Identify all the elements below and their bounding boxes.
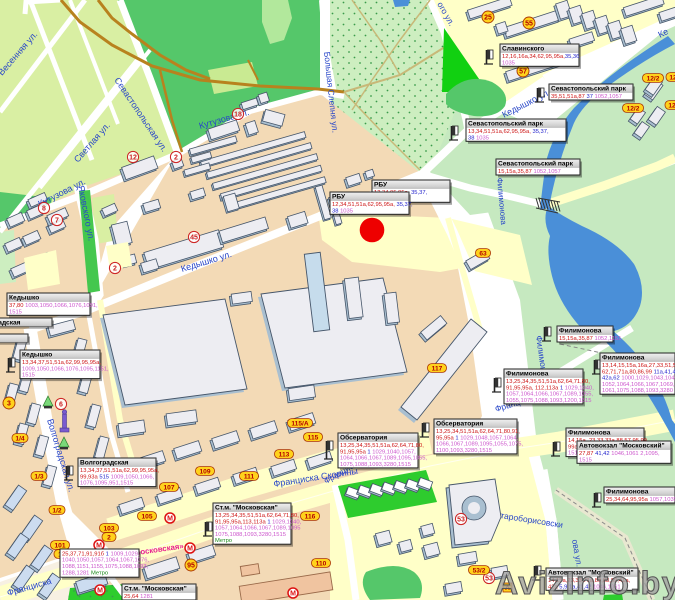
svg-text:13,25,34,35,51,51а,62,64,71,80: 13,25,34,35,51,51а,62,64,71,80, bbox=[215, 513, 299, 519]
svg-text:13,34,37,51,51а,62,99,95,95а,: 13,34,37,51,51а,62,99,95,95а, bbox=[80, 468, 159, 474]
svg-text:12: 12 bbox=[129, 155, 137, 162]
svg-text:13,25,34,51,51а,62,64,71,80,91: 13,25,34,51,51а,62,64,71,80,91, bbox=[436, 429, 520, 435]
svg-text:35,51,51а,87 37 1052,1057: 35,51,51а,87 37 1052,1057 bbox=[551, 94, 622, 100]
svg-text:1035: 1035 bbox=[502, 60, 515, 66]
svg-text:2: 2 bbox=[107, 535, 111, 542]
svg-text:12: 12 bbox=[668, 103, 675, 110]
svg-text:Волгоградская: Волгоградская bbox=[80, 460, 129, 467]
svg-text:1061,1075,1088,1093,3280: 1061,1075,1088,1093,3280 bbox=[602, 388, 673, 394]
svg-text:РБУ: РБУ bbox=[374, 182, 388, 189]
svg-text:2: 2 bbox=[113, 266, 117, 273]
svg-text:РБУ: РБУ bbox=[332, 194, 346, 201]
svg-text:3: 3 bbox=[7, 401, 11, 408]
svg-text:15,15а,35,87 1052,1151: 15,15а,35,87 1052,1151 bbox=[559, 336, 621, 342]
svg-text:1057,1064,1066,1067,1089,1095: 1057,1064,1066,1067,1089,1095 bbox=[215, 526, 300, 532]
svg-text:2: 2 bbox=[174, 155, 178, 162]
svg-text:91,95,95а,113,113а 1 1029,1040: 91,95,95а,113,113а 1 1029,1040, bbox=[215, 519, 302, 525]
svg-text:99,93а 515 1009,1050,1066,: 99,93а 515 1009,1050,1066, bbox=[80, 474, 155, 480]
svg-text:53: 53 bbox=[457, 517, 465, 524]
svg-text:Ст.м. "Московская": Ст.м. "Московская" bbox=[215, 505, 278, 512]
svg-text:25: 25 bbox=[484, 15, 492, 22]
svg-text:1/3: 1/3 bbox=[34, 474, 43, 481]
svg-text:1/2: 1/2 bbox=[52, 508, 61, 515]
svg-text:1066,1067,1089,1095,1055,1075,: 1066,1067,1089,1095,1055,1075, bbox=[436, 442, 523, 448]
svg-text:М: М bbox=[167, 516, 173, 523]
svg-text:105: 105 bbox=[141, 514, 152, 521]
svg-text:Обсерватория: Обсерватория bbox=[340, 434, 387, 442]
svg-text:91,95,95а, 112,113а 1 1029,104: 91,95,95а, 112,113а 1 1029,1040, bbox=[506, 385, 594, 391]
svg-text:115/А: 115/А bbox=[291, 421, 308, 428]
svg-text:117: 117 bbox=[432, 366, 443, 373]
svg-text:103: 103 bbox=[103, 526, 114, 533]
svg-text:95,95а 1 1029,1048,1057,1064,: 95,95а 1 1029,1048,1057,1064, bbox=[436, 435, 519, 441]
svg-text:13,34,37,51,51а,62,99,95,95а,: 13,34,37,51,51а,62,99,95,95а, bbox=[22, 360, 101, 366]
svg-text:13,34,51,51а,62,95,95а, 35,37,: 13,34,51,51а,62,95,95а, 35,37, bbox=[468, 129, 549, 135]
svg-text:12,16,16а,34,62,95,95а,35,36: 12,16,16а,34,62,95,95а,35,36 bbox=[502, 54, 579, 60]
svg-text:1515: 1515 bbox=[22, 373, 35, 379]
svg-text:62,71,71а,80,86,99 11а,41,42,: 62,71,71а,80,86,99 11а,41,42, bbox=[602, 369, 675, 375]
svg-text:95: 95 bbox=[187, 563, 195, 570]
svg-text:115: 115 bbox=[308, 435, 319, 442]
svg-text:М: М bbox=[97, 588, 103, 595]
svg-text:25,64 1281: 25,64 1281 bbox=[124, 594, 153, 600]
svg-text:107: 107 bbox=[163, 485, 174, 492]
svg-text:6: 6 bbox=[59, 402, 63, 409]
svg-text:1057,1064,1066,1067,1089,1055,: 1057,1064,1066,1067,1089,1055, bbox=[506, 392, 593, 398]
svg-text:53/2: 53/2 bbox=[473, 568, 486, 575]
svg-text:Метро: Метро bbox=[215, 538, 232, 544]
svg-text:1288,1281 Метро: 1288,1281 Метро bbox=[62, 570, 108, 576]
svg-text:38 1035: 38 1035 bbox=[468, 135, 489, 141]
svg-text:Севастопольский парк: Севастопольский парк bbox=[551, 85, 627, 93]
svg-text:Кедышко: Кедышко bbox=[22, 352, 52, 359]
svg-text:1055,1075,1088,1093,1200,1515: 1055,1075,1088,1093,1200,1515 bbox=[506, 398, 591, 404]
svg-text:1064,1066,1067,1089,1095,1055,: 1064,1066,1067,1089,1095,1055, bbox=[340, 456, 427, 462]
svg-text:Кедышко: Кедышко bbox=[9, 295, 39, 302]
svg-text:12/2: 12/2 bbox=[647, 76, 660, 83]
svg-text:27,87 41,42 1046,1061 2,1095,: 27,87 41,42 1046,1061 2,1095, bbox=[579, 451, 660, 457]
svg-text:1075,1088,1093,3280,1515: 1075,1088,1093,3280,1515 bbox=[340, 462, 411, 468]
svg-text:Славинского: Славинского bbox=[502, 46, 544, 53]
svg-text:116: 116 bbox=[305, 514, 316, 521]
svg-text:1076,1095,951,1515: 1076,1095,951,1515 bbox=[80, 481, 133, 487]
svg-text:1075,1088,1093,3280,1515: 1075,1088,1093,3280,1515 bbox=[215, 532, 286, 538]
svg-text:111: 111 bbox=[244, 474, 255, 481]
svg-text:Филимонова: Филимонова bbox=[606, 489, 649, 496]
svg-text:18: 18 bbox=[234, 112, 242, 119]
svg-text:Волгоградская: Волгоградская bbox=[0, 320, 21, 327]
svg-text:57: 57 bbox=[519, 69, 527, 76]
svg-text:1040,1050,1057,1064,1067,1076,: 1040,1050,1057,1064,1067,1076, bbox=[62, 558, 149, 564]
svg-text:1009,1050,1066,1076,1095,1151,: 1009,1050,1066,1076,1095,1151, bbox=[22, 366, 109, 372]
svg-text:55: 55 bbox=[525, 21, 533, 28]
svg-text:13,25,34,35,51,51а,62,64,71,80: 13,25,34,35,51,51а,62,64,71,80, bbox=[506, 379, 590, 385]
svg-text:Филимонова: Филимонова bbox=[568, 430, 611, 437]
svg-text:38 1035: 38 1035 bbox=[332, 208, 353, 214]
svg-text:1515: 1515 bbox=[9, 309, 22, 315]
svg-text:13,14,15,15а,16а,27,33,51,51а,: 13,14,15,15а,16а,27,33,51,51а, bbox=[602, 363, 675, 369]
svg-text:1088,1151,1155,1075,1088,1093,: 1088,1151,1155,1075,1088,1093, bbox=[62, 564, 149, 570]
svg-text:Филимонова: Филимонова bbox=[602, 355, 645, 362]
svg-text:12,34,51,51а,62,95,95а, 35,37,: 12,34,51,51а,62,95,95а, 35,37, bbox=[332, 202, 413, 208]
svg-text:AvizInfo.by: AvizInfo.by bbox=[495, 565, 675, 600]
svg-text:1052,1064,1066,1067,1069,1055,: 1052,1064,1066,1067,1069,1055, bbox=[602, 382, 675, 388]
svg-text:25,37,71,91,91б 1 1009,1029,: 25,37,71,91,91б 1 1009,1029, bbox=[62, 551, 140, 557]
svg-text:91,95,95а 1 1029,1040,1057,: 91,95,95а 1 1029,1040,1057, bbox=[340, 449, 416, 455]
svg-text:Севастопольский парк: Севастопольский парк bbox=[498, 160, 574, 168]
svg-text:37,80 1003,1050,1066,1076,1091: 37,80 1003,1050,1066,1076,1091, bbox=[9, 303, 98, 309]
svg-text:12/2: 12/2 bbox=[627, 106, 640, 113]
svg-text:8: 8 bbox=[42, 206, 46, 213]
svg-text:Севастопольский парк: Севастопольский парк bbox=[468, 120, 544, 128]
svg-text:1/4: 1/4 bbox=[15, 436, 24, 443]
svg-text:53: 53 bbox=[485, 576, 493, 583]
svg-text:Автовокзал "Московский": Автовокзал "Московский" bbox=[579, 442, 665, 450]
svg-text:109: 109 bbox=[199, 469, 210, 476]
svg-text:12: 12 bbox=[669, 75, 675, 82]
svg-text:113: 113 bbox=[279, 452, 290, 459]
svg-text:Ст.м. "Московская": Ст.м. "Московская" bbox=[124, 586, 187, 593]
svg-text:13,25,34,35,51,51а,62,64,71,80: 13,25,34,35,51,51а,62,64,71,80, bbox=[340, 443, 424, 449]
svg-text:15,15а,35,87 1052,1057: 15,15а,35,87 1052,1057 bbox=[498, 169, 561, 175]
svg-text:7: 7 bbox=[55, 218, 59, 225]
svg-text:1100,1093,3280,1515: 1100,1093,3280,1515 bbox=[436, 448, 492, 454]
svg-text:М: М bbox=[290, 591, 296, 598]
svg-text:110: 110 bbox=[316, 561, 327, 568]
svg-text:Филимонова: Филимонова bbox=[559, 328, 602, 335]
svg-text:45: 45 bbox=[190, 235, 198, 242]
svg-text:Обсерватория: Обсерватория bbox=[436, 420, 483, 428]
svg-text:63: 63 bbox=[479, 251, 487, 258]
svg-text:25,34,64,95,95а 1057,1035: 25,34,64,95,95а 1057,1035 bbox=[606, 497, 675, 503]
svg-text:М: М bbox=[187, 546, 193, 553]
svg-text:Филимонова: Филимонова bbox=[506, 371, 549, 378]
svg-text:1515: 1515 bbox=[579, 457, 592, 463]
svg-text:42а,62 1000,1029,1043,1046,: 42а,62 1000,1029,1043,1046, bbox=[602, 376, 675, 382]
